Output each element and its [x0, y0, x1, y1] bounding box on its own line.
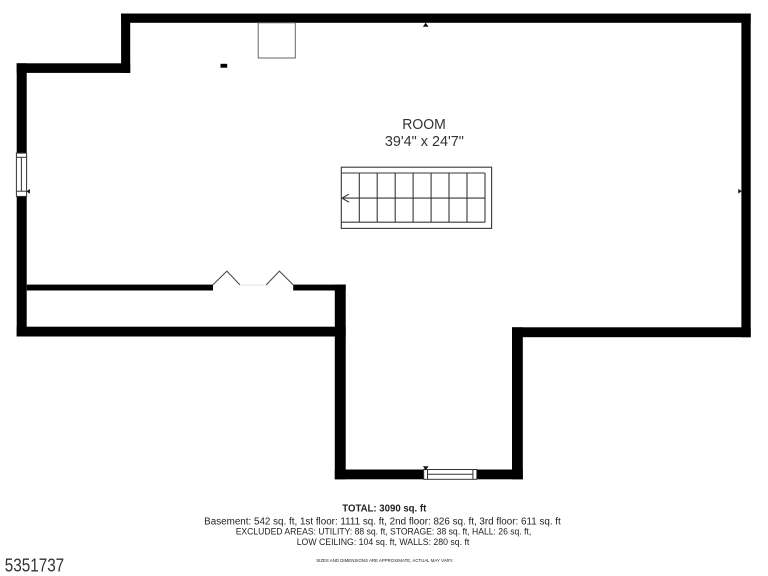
svg-text:5351737: 5351737: [5, 555, 64, 575]
svg-text:39'4" x 24'7": 39'4" x 24'7": [385, 134, 464, 150]
svg-text:TOTAL: 3090 sq. ft: TOTAL: 3090 sq. ft: [342, 503, 427, 514]
svg-text:SIZES AND DIMENSIONS ARE APPRO: SIZES AND DIMENSIONS ARE APPROXIMATE, AC…: [316, 558, 453, 563]
svg-text:ROOM: ROOM: [402, 117, 446, 133]
svg-text:LOW CEILING: 104 sq. ft, WALLS: LOW CEILING: 104 sq. ft, WALLS: 280 sq. …: [297, 536, 470, 547]
svg-text:EXCLUDED AREAS: UTILITY: 88 sq: EXCLUDED AREAS: UTILITY: 88 sq. ft, STOR…: [236, 526, 532, 537]
